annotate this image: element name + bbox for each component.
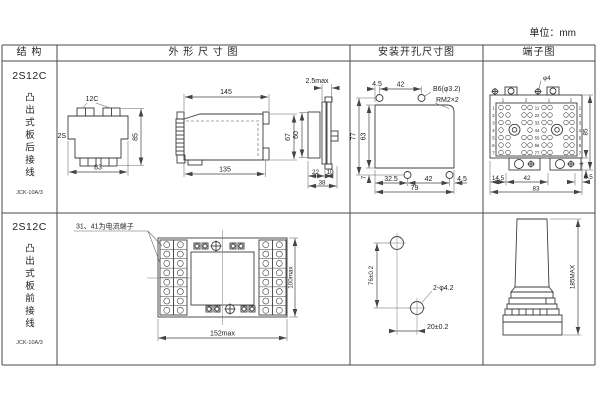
svg-text:6: 6 — [579, 143, 582, 148]
dim-inst-t2: 42 — [397, 82, 405, 89]
dim-side2-h: 185MAX — [570, 264, 577, 289]
front-board-view: 152max 100max — [147, 230, 298, 341]
label-screw-spec: RM2×2 — [436, 97, 459, 104]
svg-text:11: 11 — [535, 105, 540, 110]
svg-text:33: 33 — [535, 120, 540, 125]
dim-term-e: 4 — [580, 162, 586, 165]
label-phi4: φ4 — [543, 75, 551, 82]
svg-text:2: 2 — [525, 98, 528, 103]
dim-front-left: 2S — [57, 133, 66, 140]
svg-text:55: 55 — [535, 135, 540, 140]
dim-term-h: 85 — [583, 128, 590, 136]
rear-front-view: 12C 2S 85 83 — [57, 96, 144, 176]
dim-inst-h3: 7 — [361, 175, 368, 179]
dim-sec-h: 60 — [293, 131, 300, 139]
front-side-view: 185MAX — [503, 219, 582, 335]
svg-text:77: 77 — [535, 150, 540, 155]
svg-text:7: 7 — [492, 150, 495, 155]
drawing-canvas: 12C 2S 85 83 145 135 67 — [0, 0, 600, 400]
svg-text:22: 22 — [535, 113, 540, 118]
dim-sec-top: 2.5max — [306, 78, 329, 85]
dim-sec-d3: 38 — [318, 180, 326, 187]
terminal-left-numbers: 1 2 3 4 5 6 7 — [492, 105, 495, 155]
rear-terminal-view: φ4 85 4 14.5 42 6.5 83 1 2 1 2 1 2 3 4 5… — [490, 75, 593, 195]
svg-text:6: 6 — [492, 143, 495, 148]
svg-text:3: 3 — [492, 120, 495, 125]
svg-text:7: 7 — [579, 150, 582, 155]
dim-inst-h1: 77 — [351, 133, 358, 141]
svg-text:2: 2 — [570, 98, 573, 103]
svg-text:5: 5 — [492, 135, 495, 140]
terminal-right-numbers: 1 2 3 4 5 6 7 — [579, 105, 582, 155]
rear-section-view: 2.5max 60 22 10 38 — [293, 78, 339, 189]
dim-term-b2: 42 — [523, 175, 531, 182]
svg-text:2: 2 — [492, 113, 495, 118]
svg-text:1: 1 — [492, 105, 495, 110]
label-hole-spec: B6(φ3.2) — [433, 86, 461, 93]
dim-inst2-h: 20±0.2 — [427, 324, 448, 331]
note-text: 31、41为电流端子 — [76, 222, 134, 231]
table-grid — [2, 45, 595, 365]
svg-text:5: 5 — [579, 135, 582, 140]
terminal-mid-numbers: 11 22 33 44 55 66 77 — [535, 105, 540, 155]
terminal-top-numbers: 1 2 1 2 — [502, 98, 573, 103]
svg-text:3: 3 — [579, 120, 582, 125]
dim-side-top: 145 — [220, 89, 232, 96]
svg-text:4: 4 — [579, 128, 582, 133]
dim-side-bottom: 135 — [219, 167, 231, 174]
rear-side-view: 145 135 67 — [176, 89, 297, 177]
svg-text:1: 1 — [579, 105, 582, 110]
label-hole2-spec: 2-φ4.2 — [433, 285, 454, 292]
dim-sec-d2: 10 — [326, 169, 334, 176]
dim-inst-t1: 4.5 — [372, 81, 382, 88]
svg-text:66: 66 — [535, 143, 540, 148]
dim-board-w: 152max — [210, 331, 235, 338]
dim-inst2-v: 76±0.2 — [368, 265, 375, 285]
dim-board-h: 100max — [288, 265, 295, 288]
svg-text:4: 4 — [492, 128, 495, 133]
rear-install-view: 4.5 42 B6(φ3.2) RM2×2 77 63 7 32.5 42 4.… — [351, 81, 468, 194]
current-terminal-note: 31、41为电流端子 — [74, 222, 162, 264]
svg-text:1: 1 — [548, 98, 551, 103]
dim-inst-b2: 42 — [425, 176, 433, 183]
dim-sec-d1: 22 — [312, 169, 320, 176]
front-install-view: 76±0.2 2-φ4.2 20±0.2 — [368, 233, 454, 335]
svg-text:44: 44 — [535, 128, 540, 133]
dim-inst-h2: 63 — [361, 133, 368, 141]
dim-term-b3: 6.5 — [584, 174, 593, 181]
dim-term-b4: 83 — [532, 186, 540, 193]
dim-front-h: 85 — [133, 133, 140, 141]
dim-inst-b1: 32.5 — [384, 176, 398, 183]
dim-inst-b4: 79 — [411, 185, 419, 192]
dim-front-top: 12C — [86, 96, 99, 103]
dim-front-w: 83 — [94, 165, 102, 172]
svg-text:2: 2 — [579, 113, 582, 118]
dim-side-h: 67 — [285, 133, 292, 141]
dim-inst-b3: 4.5 — [457, 176, 467, 183]
dim-term-b1: 14.5 — [492, 175, 505, 182]
svg-text:1: 1 — [502, 98, 505, 103]
